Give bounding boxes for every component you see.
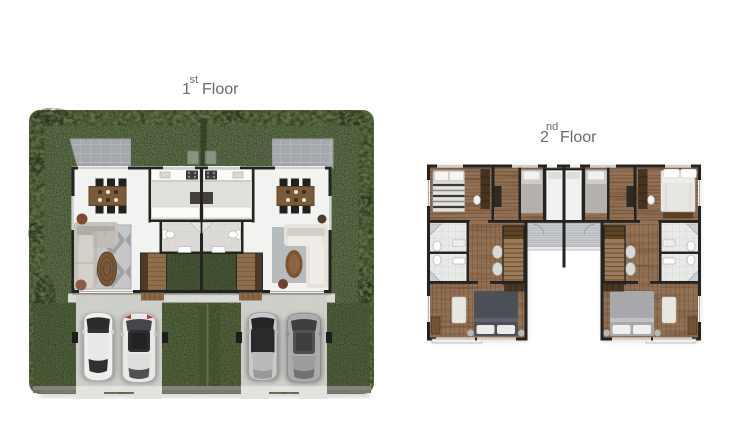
svg-text:nd: nd: [546, 121, 558, 133]
svg-text:Floor: Floor: [560, 129, 597, 146]
svg-text:Floor: Floor: [202, 81, 239, 98]
svg-text:st: st: [190, 74, 199, 86]
